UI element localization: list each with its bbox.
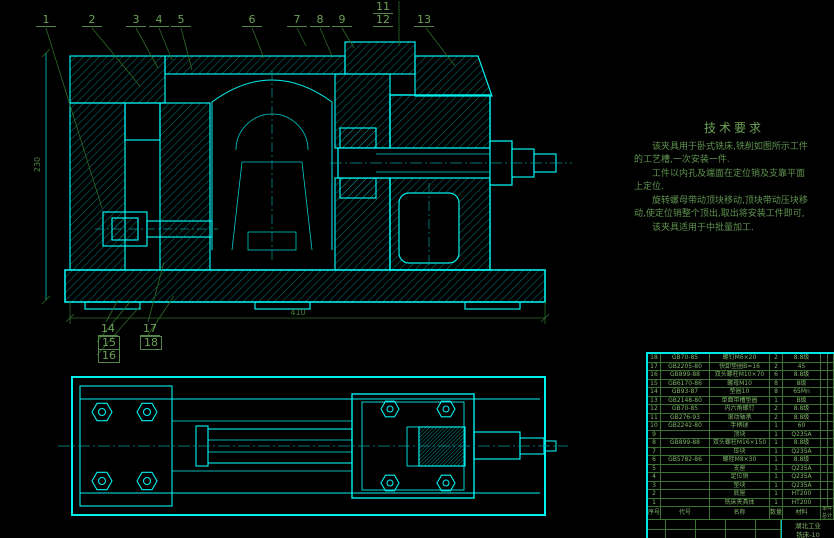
part-material-cell: B级 [783,397,821,405]
part-name-cell: 铣床夹具体 [710,499,770,507]
part-material-cell: 8.8级 [783,414,821,422]
part-qty-cell: 1 [770,456,783,464]
part-code-cell: GB5782-86 [661,456,710,464]
table-row: 13 GB2148-80 单面带槽垫圈 1 B级 [648,397,834,406]
part-extra-cell [821,388,828,396]
part-qty-cell: 2 [770,363,783,371]
table-row: 18 GB70-85 螺钉M6×20 2 8.8级 [648,354,834,363]
table-row: 3 垫块 1 Q235A [648,482,834,491]
part-code-cell: GB70-85 [661,354,710,362]
part-note-cell [828,465,834,473]
part-note-cell [828,388,834,396]
tech-requirements-title: 技术要求 [634,122,834,136]
vertical-dimension-label: 230 [33,157,42,172]
part-material-cell: Q235A [783,482,821,490]
tech-line: 该夹具用于卧式铣床,铣削如图所示工件 [634,141,834,155]
part-note-cell [828,422,834,430]
callout-5: 5 [171,14,191,27]
part-qty-cell: 2 [770,414,783,422]
header-no: 序号 [648,506,661,519]
part-extra-cell [821,465,828,473]
part-name-cell: 快卸垫圈B=16 [710,363,770,371]
part-code-cell [661,448,710,456]
part-name-cell: 螺栓M8×30 [710,456,770,464]
part-qty-cell: 1 [770,465,783,473]
callout-12: 12 [373,14,393,27]
part-note-cell [828,456,834,464]
part-extra-cell [821,422,828,430]
parts-table-header: 序号 代号 名称 数量 材料 单件 总计 重量 [648,506,834,520]
part-qty-cell: 2 [770,405,783,413]
part-name-cell: 内六角螺钉 [710,405,770,413]
part-extra-cell [821,490,828,498]
part-qty-cell: 1 [770,439,783,447]
part-qty-cell: 1 [770,490,783,498]
part-note-cell [828,482,834,490]
part-note-cell [828,490,834,498]
part-extra-cell [821,363,828,371]
tech-line: 动,使定位销整个顶出,取出将安装工件即可, [634,208,834,222]
part-code-cell: GB899-88 [661,439,710,447]
callout-7: 7 [287,14,307,27]
callout-14: 14 [98,323,118,336]
part-no-cell: 17 [648,363,661,371]
part-qty-cell: 6 [770,371,783,379]
part-name-cell: 垫圈10 [710,388,770,396]
part-qty-cell: 8 [770,388,783,396]
part-no-cell: 12 [648,405,661,413]
title-block-org-cell: 湖北工业 铣床-10 [781,520,834,538]
tech-line: 工件以内孔及端面在定位销及支靠平面 [634,168,834,182]
callout-16: 16 [98,349,120,363]
callout-3: 3 [126,14,146,27]
signature-grid [648,520,781,538]
callout-8: 8 [310,14,330,27]
part-no-cell: 14 [648,388,661,396]
part-material-cell: 65Mn [783,388,821,396]
cad-viewport: 410 [0,0,834,538]
callout-6: 6 [242,14,262,27]
part-no-cell: 18 [648,354,661,362]
part-extra-cell [821,448,828,456]
table-row: 8 GB899-88 双头螺柱M16×150 1 8.8级 [648,439,834,448]
part-no-cell: 8 [648,439,661,447]
front-section-view [65,42,572,309]
dimension-230 [42,49,50,304]
callout-17: 17 [140,323,160,336]
part-qty-cell: 1 [770,448,783,456]
part-qty-cell: 8 [770,380,783,388]
part-material-cell: Q235A [783,431,821,439]
part-extra-cell [821,456,828,464]
part-extra-cell [821,439,828,447]
part-note-cell [828,414,834,422]
part-name-cell: 滚动轴承 [710,414,770,422]
part-qty-cell: 1 [770,499,783,507]
part-name-cell: 支座 [710,465,770,473]
part-note-cell [828,439,834,447]
org-name: 湖北工业 [782,522,834,531]
table-row: 2 底座 1 HT200 [648,490,834,499]
tech-line: 该夹具适用于中批量加工. [634,222,834,236]
part-extra-cell [821,473,828,481]
callout-9: 9 [332,14,352,27]
part-note-cell [828,473,834,481]
parts-table: 18 GB70-85 螺钉M6×20 2 8.8级 17 GB2205-80 快… [646,352,834,538]
part-no-cell: 6 [648,456,661,464]
callout-1: 1 [36,14,56,27]
part-note-cell [828,431,834,439]
part-code-cell: GB2148-80 [661,397,710,405]
part-name-cell: 垫块 [710,482,770,490]
part-code-cell: GB93-87 [661,388,710,396]
table-row: 16 GB899-88 双头螺柱M10×70 6 8.8级 [648,371,834,380]
part-name-cell: 压块 [710,448,770,456]
part-name-cell: 顶块 [710,431,770,439]
part-extra-cell [821,397,828,405]
svg-text:410: 410 [290,308,305,317]
part-material-cell: 8.8级 [783,439,821,447]
part-name-cell: 底座 [710,490,770,498]
table-row: 17 GB2205-80 快卸垫圈B=16 2 45 [648,363,834,372]
part-material-cell: 8.8级 [783,354,821,362]
part-note-cell [828,371,834,379]
table-row: 5 支座 1 Q235A [648,465,834,474]
header-code: 代号 [661,506,710,519]
part-material-cell: 60 [783,422,821,430]
part-extra-cell [821,380,828,388]
parts-table-body: 18 GB70-85 螺钉M6×20 2 8.8级 17 GB2205-80 快… [648,354,834,506]
part-name-cell: 双头螺柱M16×150 [710,439,770,447]
part-material-cell: 8.8级 [783,456,821,464]
part-material-cell: HT200 [783,490,821,498]
part-name-cell: 手柄球 [710,422,770,430]
part-qty-cell: 1 [770,482,783,490]
part-code-cell: GB6170-86 [661,380,710,388]
part-no-cell: 13 [648,397,661,405]
part-extra-cell [821,414,828,422]
callout-13: 13 [414,14,434,27]
tech-line: 旋转螺母带动顶块移动,顶块带动压块移 [634,195,834,209]
part-name-cell: 定位销 [710,473,770,481]
part-extra-cell [821,371,828,379]
part-no-cell: 1 [648,499,661,507]
part-extra-cell [821,499,828,507]
table-row: 9 顶块 1 Q235A [648,431,834,440]
part-note-cell [828,499,834,507]
table-row: 7 压块 1 Q235A [648,448,834,457]
part-no-cell: 16 [648,371,661,379]
header-qty: 数量 [770,506,783,519]
part-extra-cell [821,482,828,490]
part-no-cell: 11 [648,414,661,422]
table-row: 12 GB70-85 内六角螺钉 2 8.8级 [648,405,834,414]
part-code-cell: GB899-88 [661,371,710,379]
tech-line: 上定位. [634,181,834,195]
part-name-cell: 螺母M10 [710,380,770,388]
header-material: 材料 [783,506,821,519]
part-qty-cell: 1 [770,473,783,481]
table-row: 11 GB276-93 滚动轴承 2 8.8级 [648,414,834,423]
part-no-cell: 2 [648,490,661,498]
part-code-cell: GB70-85 [661,405,710,413]
part-extra-cell [821,354,828,362]
part-code-cell [661,473,710,481]
part-qty-cell: 1 [770,431,783,439]
part-material-cell: 8级 [783,380,821,388]
part-no-cell: 15 [648,380,661,388]
part-material-cell: 8.8级 [783,405,821,413]
part-no-cell: 10 [648,422,661,430]
part-note-cell [828,363,834,371]
part-material-cell: HT200 [783,499,821,507]
part-code-cell [661,490,710,498]
header-weight: 单件 总计 重量 [821,506,834,519]
part-note-cell [828,354,834,362]
table-row: 6 GB5782-86 螺栓M8×30 1 8.8级 [648,456,834,465]
part-note-cell [828,380,834,388]
tech-line: 的工艺槽,一次安装一件. [634,154,834,168]
part-code-cell: GB2242-80 [661,422,710,430]
callout-2: 2 [82,14,102,27]
part-note-cell [828,397,834,405]
part-no-cell: 4 [648,473,661,481]
part-material-cell: Q235A [783,448,821,456]
part-code-cell [661,482,710,490]
part-note-cell [828,405,834,413]
part-no-cell: 9 [648,431,661,439]
part-name-cell: 单面带槽垫圈 [710,397,770,405]
table-row: 14 GB93-87 垫圈10 8 65Mn [648,388,834,397]
table-row: 15 GB6170-86 螺母M10 8 8级 [648,380,834,389]
part-code-cell: GB276-93 [661,414,710,422]
header-name: 名称 [710,506,770,519]
part-name-cell: 螺钉M6×20 [710,354,770,362]
tech-requirements-block: 技术要求 该夹具用于卧式铣床,铣削如图所示工件 的工艺槽,一次安装一件. 工件以… [634,122,834,235]
table-row: 4 定位销 1 Q235A [648,473,834,482]
part-material-cell: 8.8级 [783,371,821,379]
part-code-cell [661,465,710,473]
part-no-cell: 3 [648,482,661,490]
table-row: 10 GB2242-80 手柄球 1 60 [648,422,834,431]
part-material-cell: Q235A [783,473,821,481]
callout-4: 4 [149,14,169,27]
callout-18: 18 [140,336,162,350]
part-code-cell [661,431,710,439]
part-no-cell: 7 [648,448,661,456]
callout-15: 15 [98,336,120,350]
title-block: 湖北工业 铣床-10 [648,520,834,538]
part-name-cell: 双头螺柱M10×70 [710,371,770,379]
part-code-cell: GB2205-80 [661,363,710,371]
drawing-number: 铣床-10 [782,531,834,538]
part-material-cell: Q235A [783,465,821,473]
part-material-cell: 45 [783,363,821,371]
dimension-410: 410 [66,302,549,324]
part-code-cell [661,499,710,507]
part-note-cell [828,448,834,456]
part-qty-cell: 1 [770,397,783,405]
plan-view [58,377,568,515]
part-qty-cell: 2 [770,354,783,362]
part-extra-cell [821,431,828,439]
part-no-cell: 5 [648,465,661,473]
part-extra-cell [821,405,828,413]
part-qty-cell: 1 [770,422,783,430]
